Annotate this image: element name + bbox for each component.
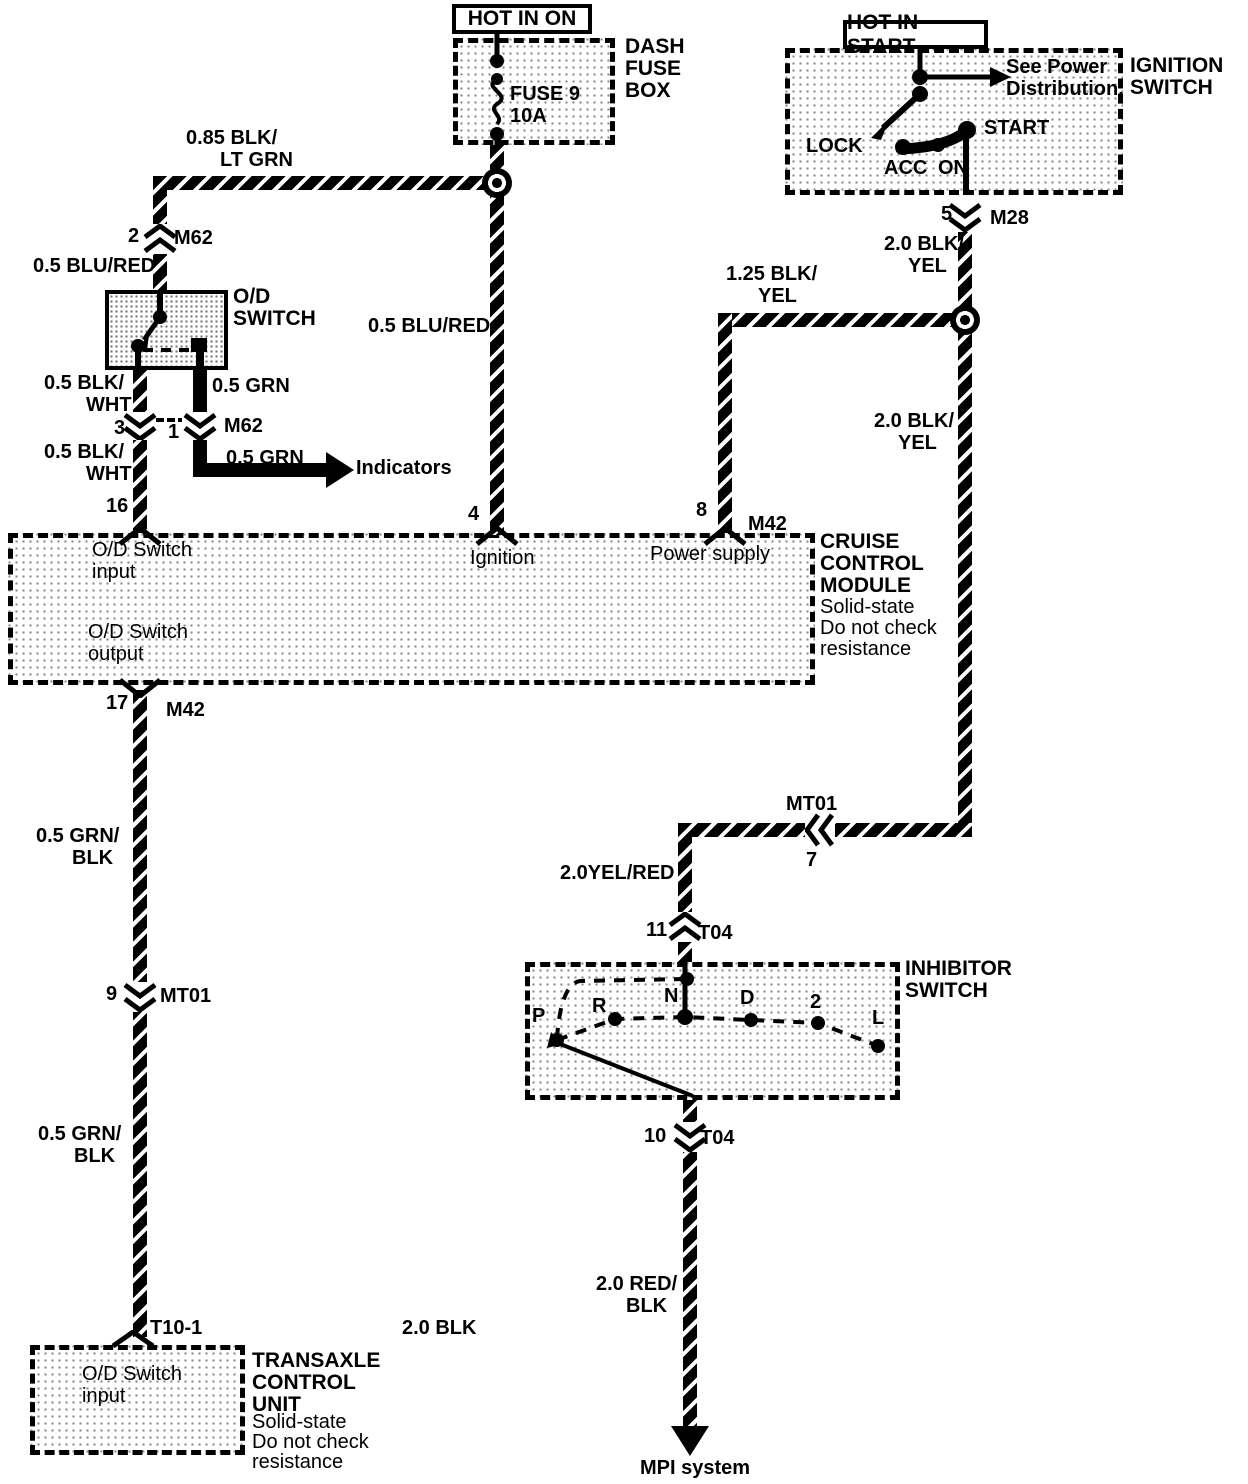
inhibitor-pos-d: D [740,988,754,1009]
wire-label-grn-blk-lower-2: BLK [74,1146,115,1167]
cruise-note-2: Do not check [820,618,937,639]
transaxle-title-1: TRANSAXLE [252,1350,380,1372]
inhibitor-title-1: INHIBITOR [905,958,1012,980]
hot-in-start-label: HOT IN START [847,11,984,59]
inhibitor-pos-p: P [532,1006,545,1027]
hot-in-start-tag: HOT IN START [843,20,988,49]
t04-bottom-name: T04 [700,1128,734,1149]
m62-bottom-name: M62 [224,416,263,437]
wire-label-blu-red-mid: 0.5 BLU/RED [368,316,490,337]
wire-label-blu-red-left: 0.5 BLU/RED [33,256,155,277]
mpi-system-label: MPI system [640,1458,750,1479]
junction-ring-fuse [482,168,512,198]
m62-top-name: M62 [174,228,213,249]
transaxle-input-label-1: O/D Switch [82,1364,182,1385]
fuse-rating-label: 10A [510,106,547,127]
mpi-arrow-icon [667,1426,713,1458]
inhibitor-pos-l: L [872,1008,884,1029]
cruise-note-1: Solid-state [820,597,915,618]
wiring-diagram-canvas: HOT IN ON HOT IN START DASH FUSE BOX FUS… [0,0,1248,1484]
cruise-note-3: resistance [820,639,911,660]
dash-fuse-box-title-3: BOX [625,80,671,102]
transaxle-title-2: CONTROL [252,1372,356,1394]
wire-label-blk-ltgrn-1: 0.85 BLK/ [186,128,277,149]
wire-label-blk-wht-lower-2: WHT [86,464,132,485]
wire-label-red-blk-1: 2.0 RED/ [596,1274,677,1295]
cruise-pin16-number: 16 [106,496,128,517]
cruise-pin4-number: 4 [468,504,479,525]
see-power-note-2: Distribution. [1006,79,1124,100]
cruise-title-3: MODULE [820,575,911,597]
inhibitor-title-2: SWITCH [905,980,988,1002]
dash-fuse-box-title-2: FUSE [625,58,681,80]
wire-label-grn-blk-upper-1: 0.5 GRN/ [36,826,119,847]
m28-pin5-number: 5 [941,204,952,225]
wire-label-blk-yel-upper-2: YEL [908,256,947,277]
mt01-right-name: MT01 [786,794,837,815]
cruise-title-1: CRUISE [820,531,899,553]
indicators-arrow-icon [326,452,356,488]
wire-label-blk-wht-upper-2: WHT [86,395,132,416]
hot-in-on-label: HOT IN ON [468,7,577,31]
junction-ring-blk-yel [950,305,980,335]
transaxle-note-2: Do not check [252,1432,369,1453]
cruise-ignition-label: Ignition [470,548,535,569]
wire-label-blk-wht-upper-1: 0.5 BLK/ [44,373,124,394]
wire-label-grn-lower: 0.5 GRN [226,448,304,469]
wire-label-grn-blk-lower-1: 0.5 GRN/ [38,1124,121,1145]
ignition-pos-on: ON [938,158,968,179]
mt01-left-name: MT01 [160,986,211,1007]
ignition-pos-lock: LOCK [806,136,863,157]
m62-pin3-number: 3 [114,418,125,439]
od-switch-symbol [105,290,228,370]
ignition-pos-start: START [984,118,1049,139]
ignition-pos-acc: ACC [884,158,927,179]
cruise-input-label-2: input [92,562,135,583]
cruise-power-label: Power supply [650,544,770,565]
t04-pin11-number: 11 [646,920,667,941]
inhibitor-pos-n: N [664,986,678,1007]
od-switch-title-2: SWITCH [233,308,316,330]
wire-blu-red-to-ignition-pin [490,145,504,535]
wire-blk-yel-125-vertical [718,313,732,533]
wire-label-blk-ltgrn-2: LT GRN [220,150,293,171]
wire-label-20-blk: 2.0 BLK [402,1318,476,1339]
connector-mt01-pin7-icon [805,812,835,848]
connector-mt01-pin9-icon [122,982,158,1012]
connector-m62-pin1-icon [182,412,218,440]
pin4-fork-icon [475,526,519,546]
connector-m62-pin2-icon [142,224,178,254]
wire-label-red-blk-2: BLK [626,1296,667,1317]
wire-label-125-blk-yel-2: YEL [758,286,797,307]
connector-m28-pin5-icon [947,202,983,232]
indicators-label: Indicators [356,458,452,479]
cruise-pin17-number: 17 [106,693,128,714]
wire-label-blk-yel-lower-1: 2.0 BLK/ [874,411,954,432]
fuse9-label: FUSE 9 [510,84,580,105]
dash-fuse-box-title-1: DASH [625,36,685,58]
wire-label-blk-wht-lower-1: 0.5 BLK/ [44,442,124,463]
m62-pin2-number: 2 [128,226,139,247]
inhibitor-pos-2: 2 [810,992,821,1013]
see-power-note-1: See Power [1006,57,1107,78]
cruise-pin8-number: 8 [696,500,707,521]
wire-label-yel-red: 2.0YEL/RED [560,863,674,884]
wire-label-125-blk-yel-1: 1.25 BLK/ [726,264,817,285]
wire-grn-blk [133,690,147,1337]
t04-pin10-number: 10 [644,1126,666,1147]
hot-in-on-tag: HOT IN ON [452,4,592,34]
wire-label-blk-yel-lower-2: YEL [898,433,937,454]
connector-m62-pin3-icon [122,412,158,440]
cruise-output-label-1: O/D Switch [88,622,188,643]
wire-blk-ltgrn-horizontal [153,176,504,190]
wire-blk-wht [133,370,147,533]
m42-output-name: M42 [166,700,205,721]
inhibitor-switch-symbol [525,962,900,1100]
transaxle-input-label-2: input [82,1386,125,1407]
m42-power-name: M42 [748,514,787,535]
wire-label-blk-yel-upper-1: 2.0 BLK/ [884,234,964,255]
mt01-pin9-number: 9 [106,984,117,1005]
od-switch-title-1: O/D [233,286,270,308]
cruise-input-label-1: O/D Switch [92,540,192,561]
wire-blk-yel-125-horizontal [726,313,972,327]
ignition-title-1: IGNITION [1130,55,1223,77]
inhibitor-pos-r: R [592,996,606,1017]
transaxle-note-1: Solid-state [252,1412,347,1433]
m62-pin1-number: 1 [168,422,179,443]
t10-1-connector-name: T10-1 [150,1318,202,1339]
m28-connector-name: M28 [990,208,1029,229]
ignition-title-2: SWITCH [1130,77,1213,99]
mt01-pin7-number: 7 [806,850,817,871]
transaxle-control-unit-box [30,1345,245,1455]
wire-label-grn-upper: 0.5 GRN [212,376,290,397]
t10-1-fork-icon [111,1330,155,1348]
cruise-output-label-2: output [88,644,144,665]
transaxle-note-3: resistance [252,1452,343,1473]
cruise-title-2: CONTROL [820,553,924,575]
t04-top-name: T04 [698,923,732,944]
wire-label-grn-blk-upper-2: BLK [72,848,113,869]
